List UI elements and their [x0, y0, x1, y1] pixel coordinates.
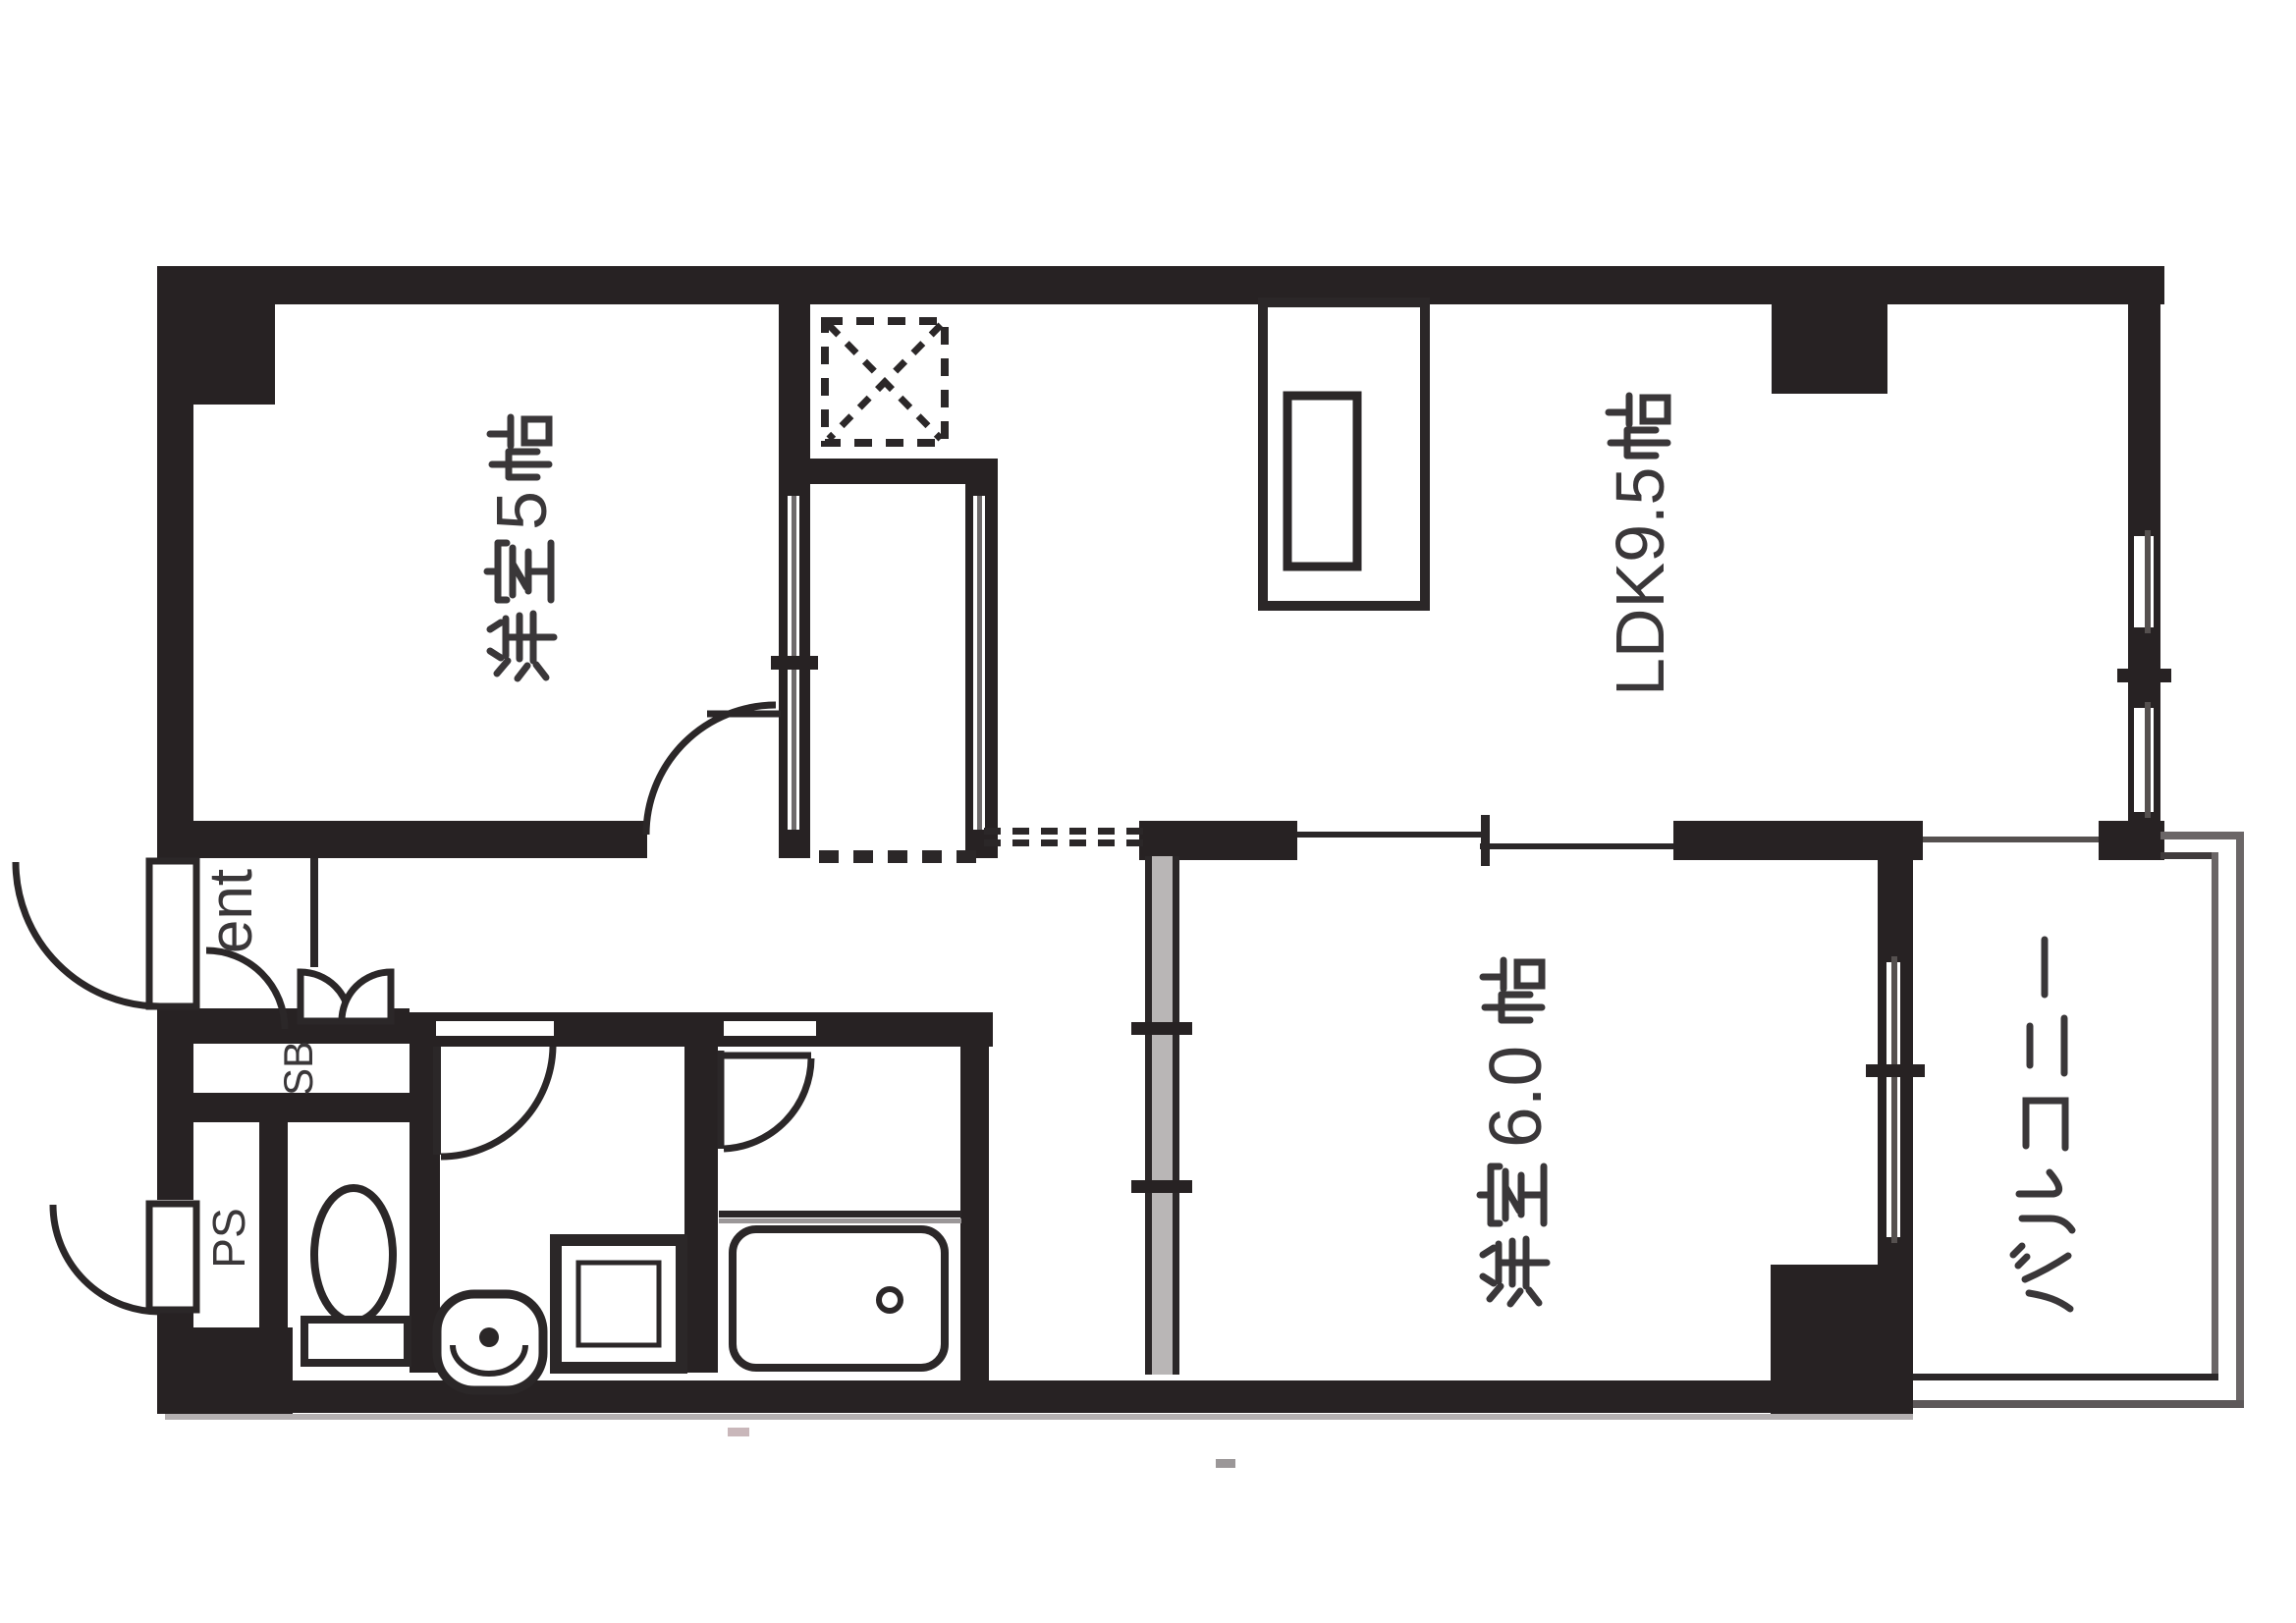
svg-text:6.0: 6.0 — [1474, 1046, 1557, 1148]
svg-text:5: 5 — [483, 491, 562, 530]
svg-text:LDK9.5: LDK9.5 — [1602, 467, 1678, 696]
svg-text:SB: SB — [275, 1041, 321, 1096]
svg-text:ent: ent — [197, 869, 265, 953]
svg-text:PS: PS — [203, 1208, 254, 1268]
